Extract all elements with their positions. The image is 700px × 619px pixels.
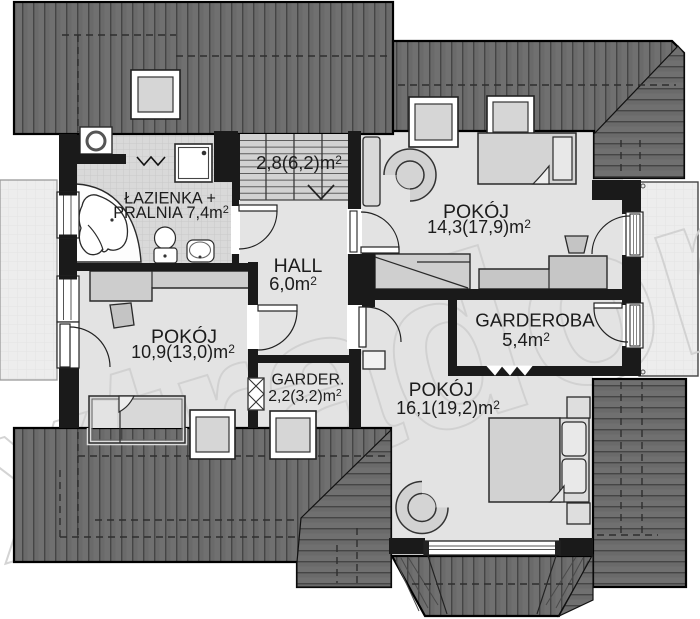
svg-text:GARDER.: GARDER.: [272, 372, 345, 389]
svg-text:GARDEROBA: GARDEROBA: [475, 310, 595, 331]
svg-text:2,2(3,2)m2: 2,2(3,2)m2: [268, 387, 342, 405]
svg-text:16,1(19,2)m2: 16,1(19,2)m2: [396, 398, 500, 418]
svg-text:6,0m2: 6,0m2: [269, 273, 317, 294]
svg-text:14,3(17,9)m2: 14,3(17,9)m2: [427, 217, 531, 237]
svg-text:PRALNIA 7,4m2: PRALNIA 7,4m2: [113, 204, 229, 222]
svg-text:5,4m2: 5,4m2: [502, 329, 550, 350]
svg-text:2,8(6,2)m2: 2,8(6,2)m2: [256, 152, 342, 173]
svg-text:10,9(13,0)m2: 10,9(13,0)m2: [131, 342, 235, 362]
